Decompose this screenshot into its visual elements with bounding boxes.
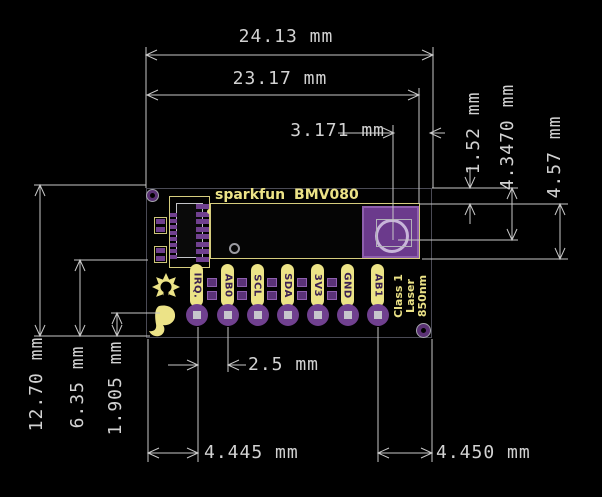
dim-right-mid: 4.3470 mm bbox=[499, 84, 517, 191]
brand-text: sparkfun bbox=[215, 188, 285, 202]
dim-bottom-left: 4.445 mm bbox=[204, 444, 299, 462]
dim-left-full: 12.70 mm bbox=[28, 337, 46, 432]
dim-top-inner: 23.17 mm bbox=[233, 70, 328, 88]
dim-pin-pitch: 2.5 mm bbox=[248, 356, 319, 374]
dim-top-outer: 24.13 mm bbox=[239, 28, 334, 46]
model-text: BMV080 bbox=[294, 188, 359, 202]
silkscreen-title: sparkfun BMV080 bbox=[215, 188, 359, 202]
dim-right-small: 1.52 mm bbox=[465, 92, 483, 175]
dim-bottom-right: 4.450 mm bbox=[436, 444, 531, 462]
laser-class-label: Class 1 Laser 850nm bbox=[393, 274, 429, 318]
dim-window-offset: 3.171 mm bbox=[290, 122, 385, 140]
dim-left-pad: 1.905 mm bbox=[107, 341, 125, 436]
dim-left-half: 6.35 mm bbox=[69, 346, 87, 429]
dimension-drawing-canvas: sparkfun BMV080 IRQ. AB0 SCL SDA 3V3 GND… bbox=[0, 0, 602, 497]
dim-right-large: 4.57 mm bbox=[546, 116, 564, 199]
